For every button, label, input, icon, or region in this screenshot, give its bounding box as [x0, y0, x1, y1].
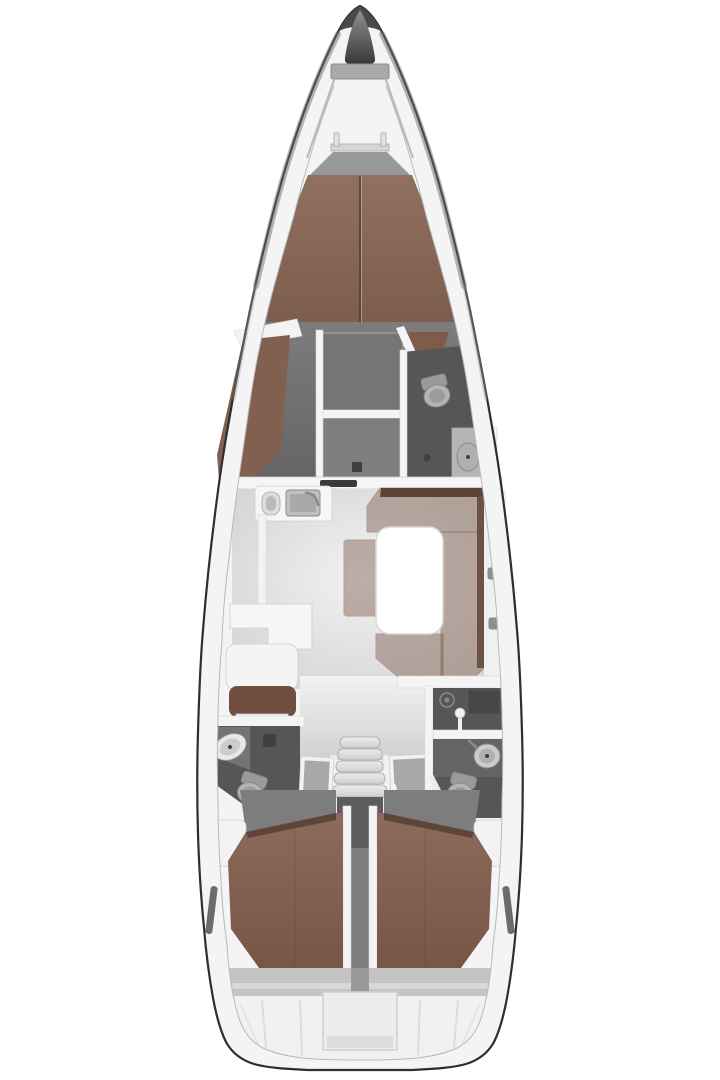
transom-recess-shade	[327, 1036, 393, 1048]
aft-center-channel	[351, 848, 369, 974]
port-aft-berth	[228, 813, 343, 968]
companionway-step-1	[340, 737, 380, 748]
forward-head-basin-drain	[466, 455, 470, 459]
companionway-step-3	[336, 761, 383, 772]
port-head-box	[263, 734, 276, 747]
wardrobe-hatch-dark	[352, 462, 362, 472]
companionway-step-5	[333, 785, 387, 797]
rail-post-port	[334, 133, 339, 146]
starboard-aft-berth	[377, 813, 492, 968]
bow-shelf	[331, 64, 389, 79]
galley-sink-inner	[290, 494, 316, 512]
forward-head-wall	[400, 350, 407, 486]
wardrobe-shelf	[322, 410, 403, 418]
shower-speaker-dot	[445, 698, 450, 703]
nav-seat	[226, 644, 298, 690]
aft-divider-wall-left	[343, 806, 351, 974]
nav-seat-backrest	[229, 686, 296, 717]
sofa-right-back	[477, 497, 484, 668]
berth-head-rail	[331, 144, 389, 151]
salon-aft-wall-starboard	[398, 676, 512, 688]
floor-plan-svg	[0, 0, 720, 1080]
starboard-basin-drain	[485, 754, 489, 758]
aft-divider-wall-right	[369, 806, 377, 974]
sofa-top-back	[380, 488, 484, 497]
galley-counter-edge	[258, 515, 266, 612]
forward-center-wall	[316, 330, 323, 488]
salon-bench	[344, 540, 378, 616]
galley-small-basin	[266, 496, 276, 511]
shower-fitting-dark	[468, 690, 500, 714]
wardrobe-upper	[322, 333, 403, 410]
salon-table	[376, 527, 443, 634]
shower-pole-knob	[455, 708, 465, 718]
companionway-step-2	[338, 749, 382, 760]
yacht-floor-plan	[0, 0, 720, 1080]
companionway-step-4	[334, 773, 385, 784]
shower-drain	[424, 455, 431, 462]
rail-post-starboard	[381, 133, 386, 146]
starboard-head-divider	[433, 730, 510, 739]
wardrobe-lower	[322, 418, 403, 478]
port-cabin-hatch	[299, 756, 334, 796]
port-head-top-wall	[218, 716, 304, 727]
